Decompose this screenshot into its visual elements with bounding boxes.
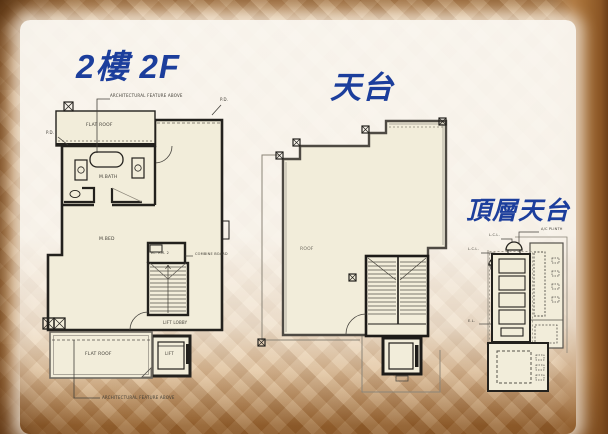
plan-2f-drawing xyxy=(42,93,234,408)
title-floor-2f: 2樓 2F xyxy=(76,40,180,88)
label-lcl-upper: L.C.L. xyxy=(489,234,500,238)
label-arch-feature-bottom: ARCHITECTURAL FEATURE ABOVE xyxy=(102,396,175,400)
label-pd-right: P.D. xyxy=(220,98,228,102)
label-pd-left: P.D. xyxy=(46,131,54,135)
label-ac-plinth: A/C PLINTH xyxy=(541,228,563,232)
label-el-rm: EL. RM. 2 xyxy=(151,252,169,256)
label-arch-feature-top: ARCHITECTURAL FEATURE ABOVE xyxy=(110,94,183,98)
label-flat-roof-top: FLAT ROOF xyxy=(86,124,113,129)
plan-top-roof-drawing xyxy=(455,228,580,398)
label-roof: ROOF xyxy=(300,248,314,253)
label-lcl-lower: L.C.L. xyxy=(468,248,479,252)
label-el: E.L. xyxy=(468,320,475,324)
label-flat-roof-bottom: FLAT ROOF xyxy=(85,353,112,358)
plan-2f: ARCHITECTURAL FEATURE ABOVE P.D. P.D. FL… xyxy=(42,93,234,408)
label-lift: LIFT xyxy=(165,352,174,356)
title-roof-terrace: 天台 xyxy=(330,62,394,107)
label-lift-lobby: LIFT LOBBY xyxy=(163,321,187,325)
label-combine-board: COMBINE BOARD xyxy=(195,253,228,257)
plan-roof: ROOF xyxy=(248,112,453,397)
floorplan-image: 2樓 2F 天台 頂層天台 xyxy=(0,0,608,434)
plan-roof-drawing xyxy=(248,112,453,397)
label-mbath: M.BATH xyxy=(99,176,117,181)
label-mbed: M.BED xyxy=(99,238,115,243)
title-top-roof: 頂層天台 xyxy=(466,191,570,227)
plan-top-roof: A/C PLINTH L.C.L. L.C.L. E.L. xyxy=(455,228,580,398)
